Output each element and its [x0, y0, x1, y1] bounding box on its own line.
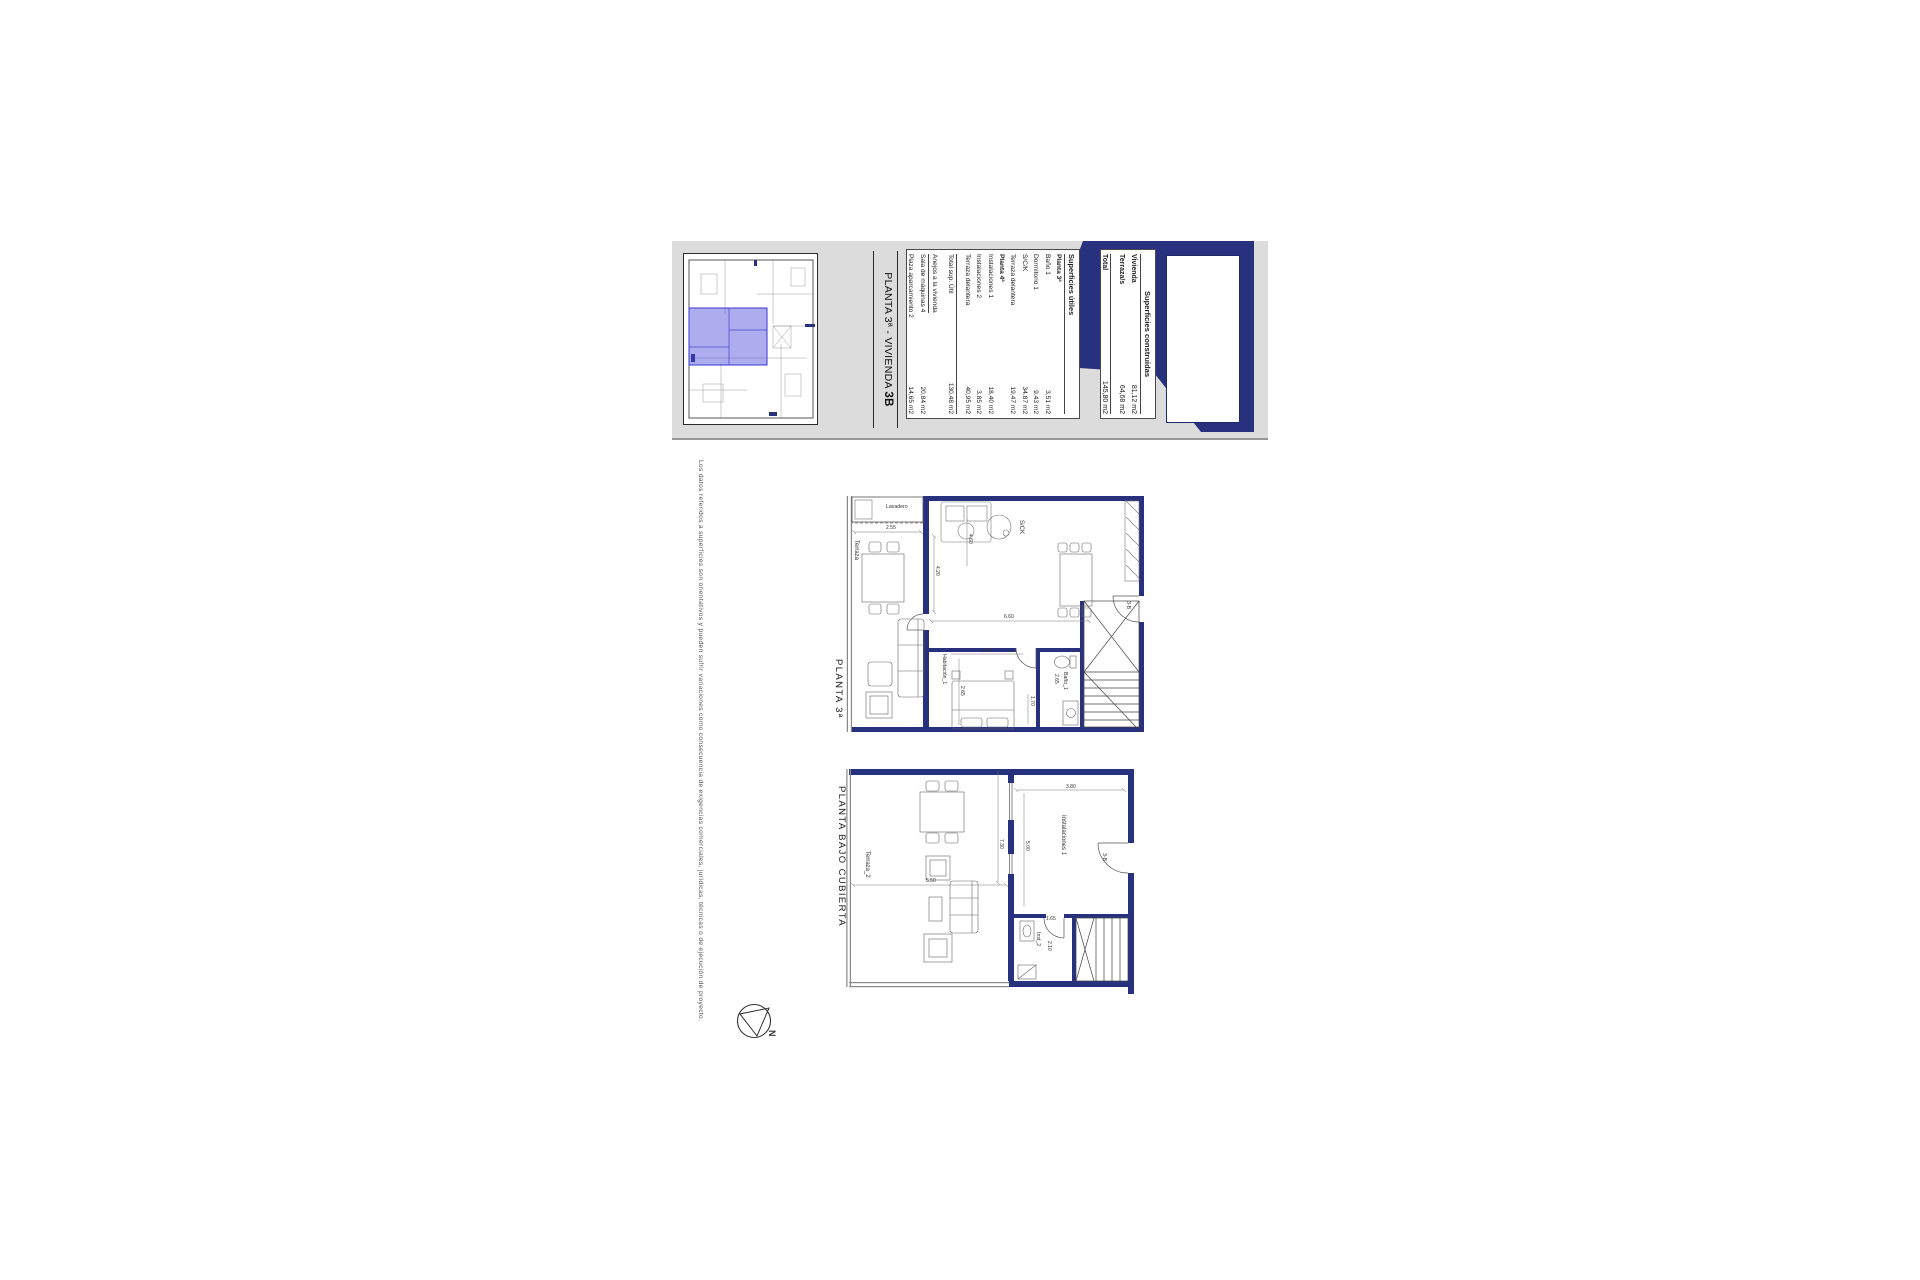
sheet-title: PLANTA 3ª - VIVIENDA 3B — [882, 249, 894, 430]
row-value: 14,65 m2 — [905, 387, 916, 415]
table-row-section: Anejos a la vivienda — [928, 254, 940, 414]
dim-inst-width: 3.80 — [1066, 784, 1076, 790]
sheet-title-text: PLANTA 3ª - VIVIENDA — [882, 272, 894, 391]
row-label: Terraza delantera — [1007, 254, 1018, 305]
table-row: Instalaciones 118,40 m2 — [984, 254, 995, 414]
built-areas-table: Superficies construidas Vivienda 81,12 m… — [1100, 249, 1156, 419]
table-row: S/C/K34,87 m2 — [1018, 254, 1029, 414]
table-row: Terraza delantera40,95 m2 — [961, 254, 972, 414]
table-row-total: Total 145,80 m2 — [1099, 254, 1112, 414]
dining-table — [1058, 543, 1092, 617]
row-label: Plaza aparcamiento 2 — [905, 254, 916, 318]
row-label: Instalaciones 1 — [984, 254, 995, 298]
highlighted-unit — [689, 308, 767, 365]
row-label: Planta 3ª — [1053, 254, 1064, 282]
door-label: 3-B — [1125, 601, 1131, 610]
row-label: Baño 1 — [1041, 254, 1052, 275]
row-label: Terraza/s — [1115, 254, 1127, 284]
terrace-railing — [847, 496, 852, 732]
north-arrow-icon — [740, 1008, 769, 1036]
plan2-caption: PLANTA BAJO CUBIERTA — [836, 786, 847, 927]
table-row: Terraza/s 64,68 m2 — [1115, 254, 1127, 414]
title-rule-top — [897, 251, 898, 428]
dim-stair-width: 1.70 — [1029, 696, 1035, 706]
bathroom-door-arc — [1016, 648, 1036, 668]
dim-living-width: 4.20 — [934, 566, 940, 576]
room-label-bedroom: Habitación_1 — [941, 654, 947, 684]
row-label: Terraza delantera — [961, 254, 972, 305]
row-label: Dormitorio 1 — [1030, 254, 1041, 290]
dimension-lines — [852, 519, 1091, 725]
table-row-section: Planta 4ª — [996, 254, 1007, 414]
row-value: 81,12 m2 — [1127, 385, 1139, 414]
logo-box — [1166, 255, 1240, 423]
row-value: 9,43 m2 — [1030, 390, 1041, 414]
dim-terrace-span: 7.30 — [998, 839, 1004, 849]
north-compass: N — [728, 997, 784, 1047]
row-value: 145,80 m2 — [1099, 381, 1111, 414]
room-label-sck: S/CK — [1018, 520, 1024, 534]
dim-inst2-width: 1.65 — [1046, 916, 1056, 922]
table-row-section: Planta 3ª — [1053, 254, 1064, 414]
dim-inst2-depth: 2.10 — [1046, 941, 1052, 951]
table-row: Terraza delantera19,47 m2 — [1007, 254, 1018, 414]
key-plan — [683, 253, 818, 425]
page-canvas: Superficies construidas Vivienda 81,12 m… — [0, 0, 1920, 1280]
room-label-inst2: Inst_2 — [1035, 932, 1041, 946]
floorplan-planta3: 2.55 4.20 4.60 6.60 3.45 2.65 1.70 Baño_… — [846, 496, 1144, 732]
room-label-lavadero: Lavadero — [886, 504, 908, 510]
row-value: 3,85 m2 — [973, 390, 984, 414]
laundry-box — [852, 497, 923, 523]
usable-areas-header: Superficies útiles — [1064, 254, 1078, 414]
row-label: Anejos a la vivienda — [928, 254, 940, 313]
row-label: Total — [1099, 254, 1111, 270]
title-block: Superficies construidas Vivienda 81,12 m… — [672, 241, 1268, 440]
row-label: Planta 4ª — [996, 254, 1007, 282]
row-label: Vivienda — [1127, 254, 1139, 283]
dim-terrace-width: 2.55 — [886, 525, 896, 531]
row-value: 34,87 m2 — [1018, 387, 1029, 415]
table-row: Plaza aparcamiento 214,65 m2 — [905, 254, 916, 414]
row-value: 19,47 m2 — [1007, 387, 1018, 415]
dimension-lines — [851, 771, 1126, 906]
table-row: Instalaciones 23,85 m2 — [973, 254, 984, 414]
room-label-terraza2: Terraza_2 — [864, 851, 870, 878]
unit-number: 3B — [882, 391, 894, 406]
title-rule-bottom — [873, 251, 874, 428]
room-label-bath: Baño_1 — [1062, 672, 1068, 690]
dim-bedroom-depth: 2.65 — [959, 686, 965, 696]
row-label: Instalaciones 2 — [973, 254, 984, 298]
north-label: N — [767, 1030, 777, 1037]
row-label: Total sup. Útil — [945, 254, 956, 294]
dim-inst-depth: 5.00 — [1024, 841, 1030, 851]
room-label-inst1: Instalaciones 1 — [1060, 815, 1066, 856]
row-value: 20,84 m2 — [916, 387, 927, 415]
inst2-fixtures — [1018, 921, 1036, 979]
floorplan-bajo-cubierta: 3.80 5.00 7.30 5.50 1.65 2.10 Instalacio… — [846, 769, 1134, 994]
usable-areas-table: Superficies útiles Planta 3ª Baño 13,51 … — [906, 249, 1080, 419]
table-row-total: Total sup. Útil130,48 m2 — [945, 254, 957, 414]
disclaimer-text: Los datos referidos a superficies son or… — [697, 460, 704, 1021]
dim-depth: 6.60 — [1004, 614, 1014, 620]
plan1-caption: PLANTA 3ª — [833, 659, 844, 719]
room-label-terraza: Terraza — [853, 540, 859, 561]
stairs — [1084, 601, 1139, 727]
bath-fixtures — [1055, 656, 1079, 725]
row-value: 130,48 m2 — [945, 383, 956, 414]
plan-sheet: Superficies construidas Vivienda 81,12 m… — [672, 241, 1268, 1053]
terrace-door-arc — [907, 614, 923, 630]
row-value: 18,40 m2 — [984, 387, 995, 415]
row-label: Sala de máquinas 4 — [916, 254, 927, 312]
built-areas-header: Superficies construidas — [1140, 254, 1154, 414]
table-row: Baño 13,51 m2 — [1041, 254, 1052, 414]
terrace-furniture — [920, 781, 978, 962]
table-row: Vivienda 81,12 m2 — [1127, 254, 1139, 414]
row-value: 40,95 m2 — [961, 387, 972, 415]
dim-kitchen-width: 4.60 — [967, 534, 973, 544]
table-row: Sala de máquinas 420,84 m2 — [916, 254, 927, 414]
key-plan-drawing — [684, 254, 817, 424]
row-label: S/C/K — [1018, 254, 1029, 271]
door-label: 3-B — [1101, 853, 1107, 862]
stairs — [1076, 918, 1128, 981]
row-value: 3,51 m2 — [1041, 390, 1052, 414]
bed — [952, 671, 1014, 729]
row-value: 64,68 m2 — [1115, 385, 1127, 414]
dim-terrace-width: 5.50 — [926, 878, 936, 884]
table-row: Dormitorio 19,43 m2 — [1030, 254, 1041, 414]
walls — [849, 769, 1134, 994]
dim-bath-width: 2.65 — [1053, 674, 1059, 684]
dim-bedroom-width: 3.45 — [982, 648, 992, 654]
